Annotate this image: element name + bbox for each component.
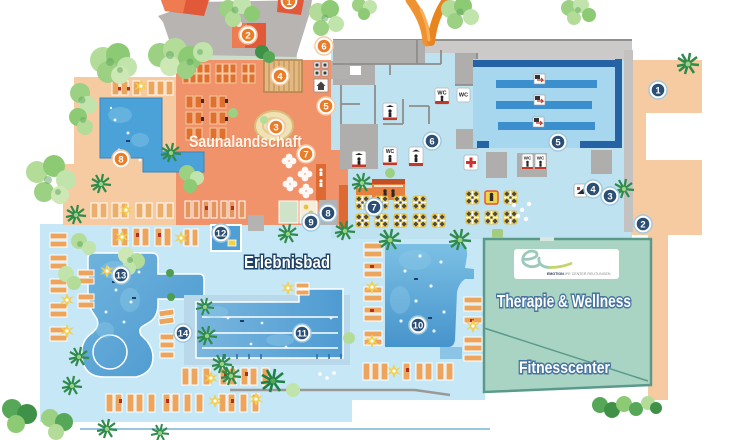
svg-text:9: 9 [308,218,313,229]
svg-text:5: 5 [555,138,561,149]
svg-text:7: 7 [371,203,376,214]
svg-text:14: 14 [178,329,189,340]
svg-text:WC: WC [537,156,545,161]
svg-text:10: 10 [413,321,424,332]
svg-text:2: 2 [245,31,250,42]
svg-text:EMOTION: EMOTION [547,272,564,276]
svg-text:Fitnesscenter: Fitnesscenter [519,359,610,377]
svg-text:13: 13 [116,271,127,282]
svg-text:4: 4 [277,72,283,83]
svg-text:4: 4 [590,185,596,196]
svg-text:1: 1 [655,86,661,97]
svg-text:3: 3 [607,192,612,203]
svg-text:3: 3 [273,123,278,134]
svg-text:5: 5 [323,102,329,113]
svg-text:Erlebnisbad: Erlebnisbad [244,252,330,272]
svg-text:LIFE CENTER REUTLINGEN: LIFE CENTER REUTLINGEN [563,272,611,276]
svg-text:8: 8 [118,155,123,166]
svg-text:WC: WC [386,149,395,155]
svg-text:6: 6 [321,42,326,53]
svg-text:2: 2 [640,220,645,231]
svg-text:1: 1 [286,0,292,8]
svg-text:6: 6 [429,137,434,148]
svg-text:11: 11 [297,329,308,340]
svg-text:7: 7 [303,150,308,161]
svg-text:8: 8 [325,209,330,220]
svg-text:WC: WC [524,156,532,161]
svg-text:Therapie & Wellness: Therapie & Wellness [497,291,631,311]
svg-text:WC: WC [459,93,468,99]
svg-text:WC: WC [437,91,446,97]
svg-text:12: 12 [216,229,227,240]
svg-text:Saunalandschaft: Saunalandschaft [189,132,302,151]
